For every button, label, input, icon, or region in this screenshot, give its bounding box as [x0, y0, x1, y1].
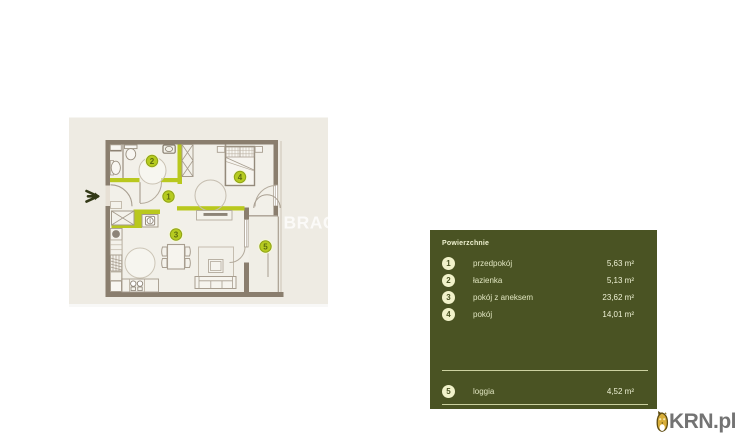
- svg-text:4: 4: [238, 173, 243, 182]
- svg-text:1: 1: [166, 192, 171, 201]
- svg-text:2: 2: [150, 157, 155, 166]
- svg-text:3: 3: [174, 230, 179, 239]
- svg-text:5: 5: [263, 242, 268, 251]
- svg-text:BRACIA: BRACIA: [284, 213, 355, 233]
